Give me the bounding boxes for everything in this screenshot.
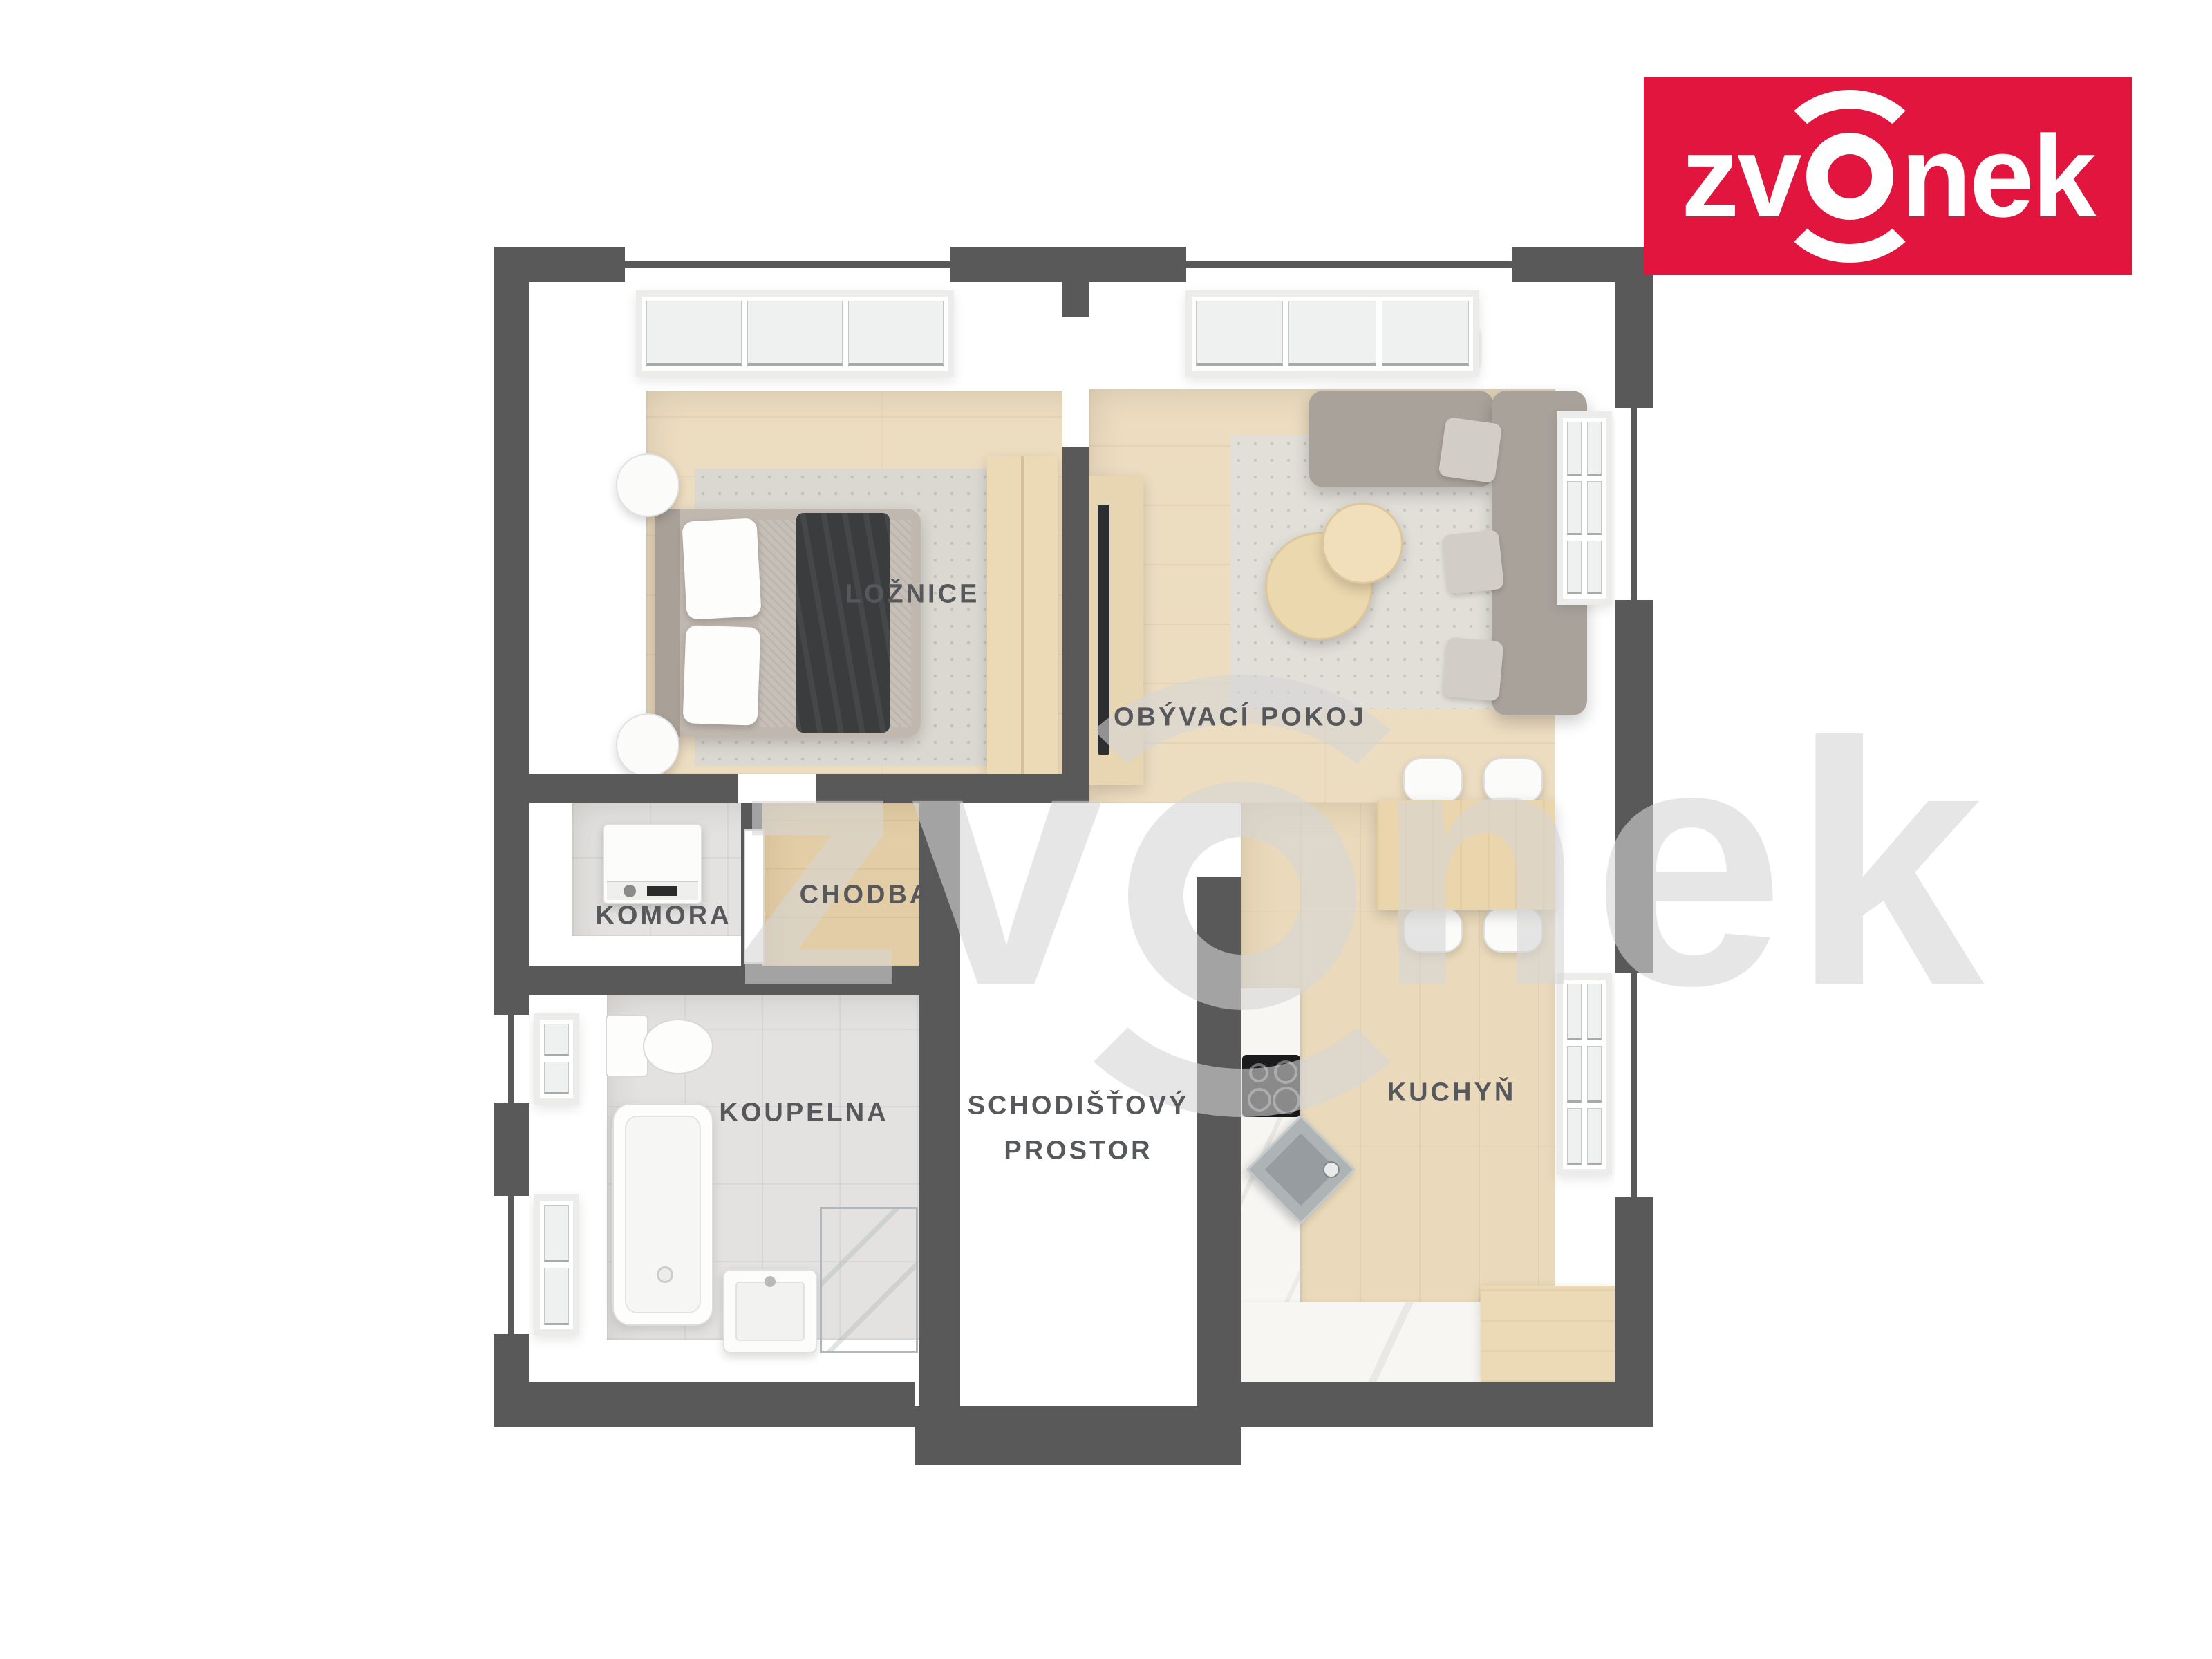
kitchen-bench bbox=[1481, 1286, 1615, 1382]
window-pane bbox=[1587, 541, 1602, 594]
window-pane bbox=[1567, 541, 1582, 594]
shower-enclosure bbox=[820, 1207, 918, 1353]
toilet-bowl bbox=[643, 1019, 713, 1074]
window-symbol-bathroom-upper bbox=[494, 1015, 529, 1103]
label-living: OBÝVACÍ POKOJ bbox=[1114, 703, 1367, 733]
living-window-right bbox=[1557, 411, 1612, 605]
wall-divider-top bbox=[1062, 282, 1089, 317]
sofa-pillow bbox=[1438, 417, 1502, 484]
washer-display bbox=[647, 886, 677, 896]
window-pane bbox=[646, 301, 742, 366]
window-symbol-living-right bbox=[1615, 408, 1653, 600]
zvonek-logo: zvnek bbox=[1644, 77, 2132, 275]
nightstand bbox=[616, 453, 679, 517]
label-staircase: SCHODIŠŤOVÝ PROSTOR bbox=[968, 1083, 1190, 1172]
bathtub bbox=[612, 1103, 713, 1326]
sofa-pillow bbox=[1442, 529, 1505, 594]
bathtub-inner bbox=[625, 1116, 701, 1313]
bathroom-window-upper bbox=[534, 1013, 579, 1105]
window-symbol-bedroom-top bbox=[625, 247, 950, 282]
window-pane bbox=[544, 1024, 569, 1056]
bell-o-icon bbox=[1806, 133, 1893, 220]
washing-machine bbox=[603, 824, 702, 904]
bed-pillow bbox=[682, 518, 761, 619]
window-pane bbox=[1567, 481, 1582, 535]
coffee-table-small bbox=[1322, 503, 1403, 584]
label-staircase-line2: PROSTOR bbox=[968, 1128, 1190, 1173]
window-pane bbox=[1196, 301, 1283, 366]
label-hallway: CHODBA bbox=[800, 881, 932, 910]
toilet-tank bbox=[606, 1015, 648, 1077]
bedroom-window bbox=[636, 290, 954, 377]
window-symbol-bathroom-lower bbox=[494, 1196, 529, 1334]
wall-bottom-left bbox=[494, 1382, 915, 1427]
window-pane bbox=[1587, 1108, 1602, 1165]
bathroom-window-lower bbox=[534, 1194, 579, 1335]
bathtub-drain bbox=[657, 1266, 673, 1283]
window-pane bbox=[1587, 481, 1602, 535]
bathroom-sink bbox=[723, 1269, 817, 1353]
window-pane bbox=[848, 301, 944, 366]
living-window-top bbox=[1185, 290, 1479, 377]
sink-basin bbox=[735, 1282, 805, 1341]
label-kitchen: KUCHYŇ bbox=[1387, 1078, 1517, 1108]
window-pane bbox=[1288, 301, 1376, 366]
label-bedroom: LOŽNICE bbox=[845, 580, 980, 610]
label-staircase-line1: SCHODIŠŤOVÝ bbox=[968, 1083, 1190, 1128]
zvonek-watermark: zvnek bbox=[731, 691, 1991, 1037]
logo-text-end: nek bbox=[1900, 110, 2094, 243]
sink-faucet bbox=[765, 1276, 776, 1287]
window-pane bbox=[1567, 422, 1582, 476]
window-pane bbox=[1587, 422, 1602, 476]
label-storage: KOMORA bbox=[595, 901, 731, 931]
wall-bottom-right bbox=[1241, 1382, 1653, 1427]
window-pane bbox=[1382, 301, 1469, 366]
floor-plan-page: LOŽNICE OBÝVACÍ POKOJ KOMORA CHODBA KOUP… bbox=[0, 0, 2212, 1659]
wall-bedroom-bottom-a bbox=[494, 774, 738, 803]
washer-dial bbox=[624, 885, 636, 897]
wall-staircase-bottom bbox=[915, 1406, 1241, 1465]
window-pane bbox=[747, 301, 843, 366]
window-pane bbox=[544, 1205, 569, 1262]
label-bathroom: KOUPELNA bbox=[719, 1098, 888, 1128]
window-pane bbox=[544, 1268, 569, 1325]
window-pane bbox=[544, 1062, 569, 1094]
bell-o-icon bbox=[1128, 782, 1356, 1010]
bed-headboard bbox=[655, 509, 680, 737]
window-pane bbox=[1567, 1108, 1582, 1165]
window-symbol-living-top bbox=[1186, 247, 1512, 282]
nightstand bbox=[616, 713, 679, 777]
watermark-text-end: nek bbox=[1374, 671, 1991, 1057]
